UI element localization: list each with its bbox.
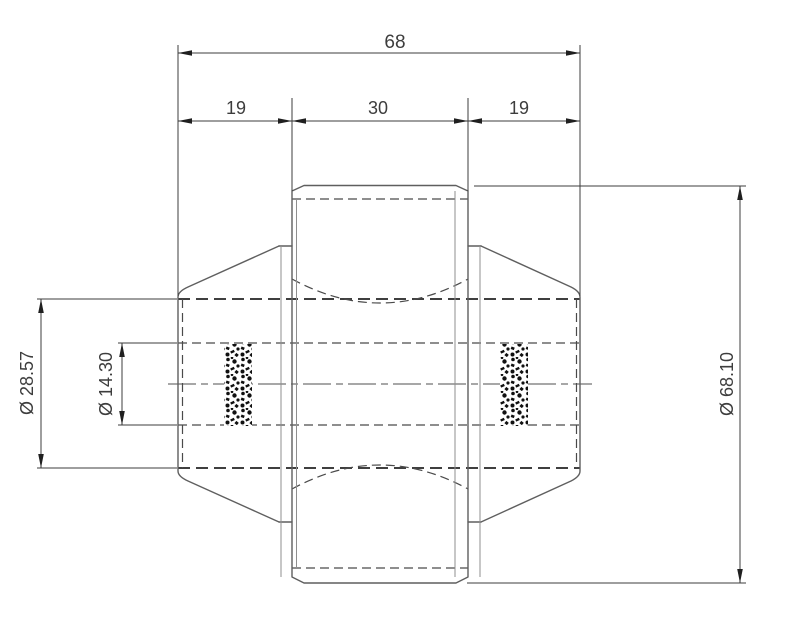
dim-overall-width-label: 68 xyxy=(384,32,405,53)
arrowhead xyxy=(566,50,580,56)
arrowhead xyxy=(119,343,125,357)
arrowhead xyxy=(38,454,44,468)
arrowhead xyxy=(292,118,306,124)
dim-counterbore-diameter-label: Ø 28.57 xyxy=(17,351,37,415)
arrowhead xyxy=(468,118,482,124)
knurl-band-right xyxy=(500,344,528,426)
arrowhead xyxy=(454,118,468,124)
arrowhead xyxy=(737,186,743,200)
dim-outer-diameter-label: Ø 68.10 xyxy=(717,352,737,416)
dim-left-section-label: 19 xyxy=(226,98,246,118)
dimension-bore-diameter: Ø 14.30 xyxy=(96,343,177,425)
dimension-overall-width: 68 xyxy=(178,32,580,296)
arrowhead xyxy=(178,50,192,56)
dim-right-section-label: 19 xyxy=(509,98,529,118)
arrowhead xyxy=(737,569,743,583)
knurl-band-left xyxy=(224,344,252,426)
drawing-canvas: 68 19 30 19 Ø 28.57 Ø 14.30 xyxy=(0,0,800,633)
part-view xyxy=(168,186,592,584)
dim-center-section-label: 30 xyxy=(368,98,388,118)
dimension-sections: 19 30 19 xyxy=(178,98,580,191)
arrowhead xyxy=(178,118,192,124)
technical-drawing: 68 19 30 19 Ø 28.57 Ø 14.30 xyxy=(0,0,800,633)
arrowhead xyxy=(278,118,292,124)
dim-bore-diameter-label: Ø 14.30 xyxy=(96,352,116,416)
arrowhead xyxy=(566,118,580,124)
arrowhead xyxy=(38,299,44,313)
arrowhead xyxy=(119,411,125,425)
